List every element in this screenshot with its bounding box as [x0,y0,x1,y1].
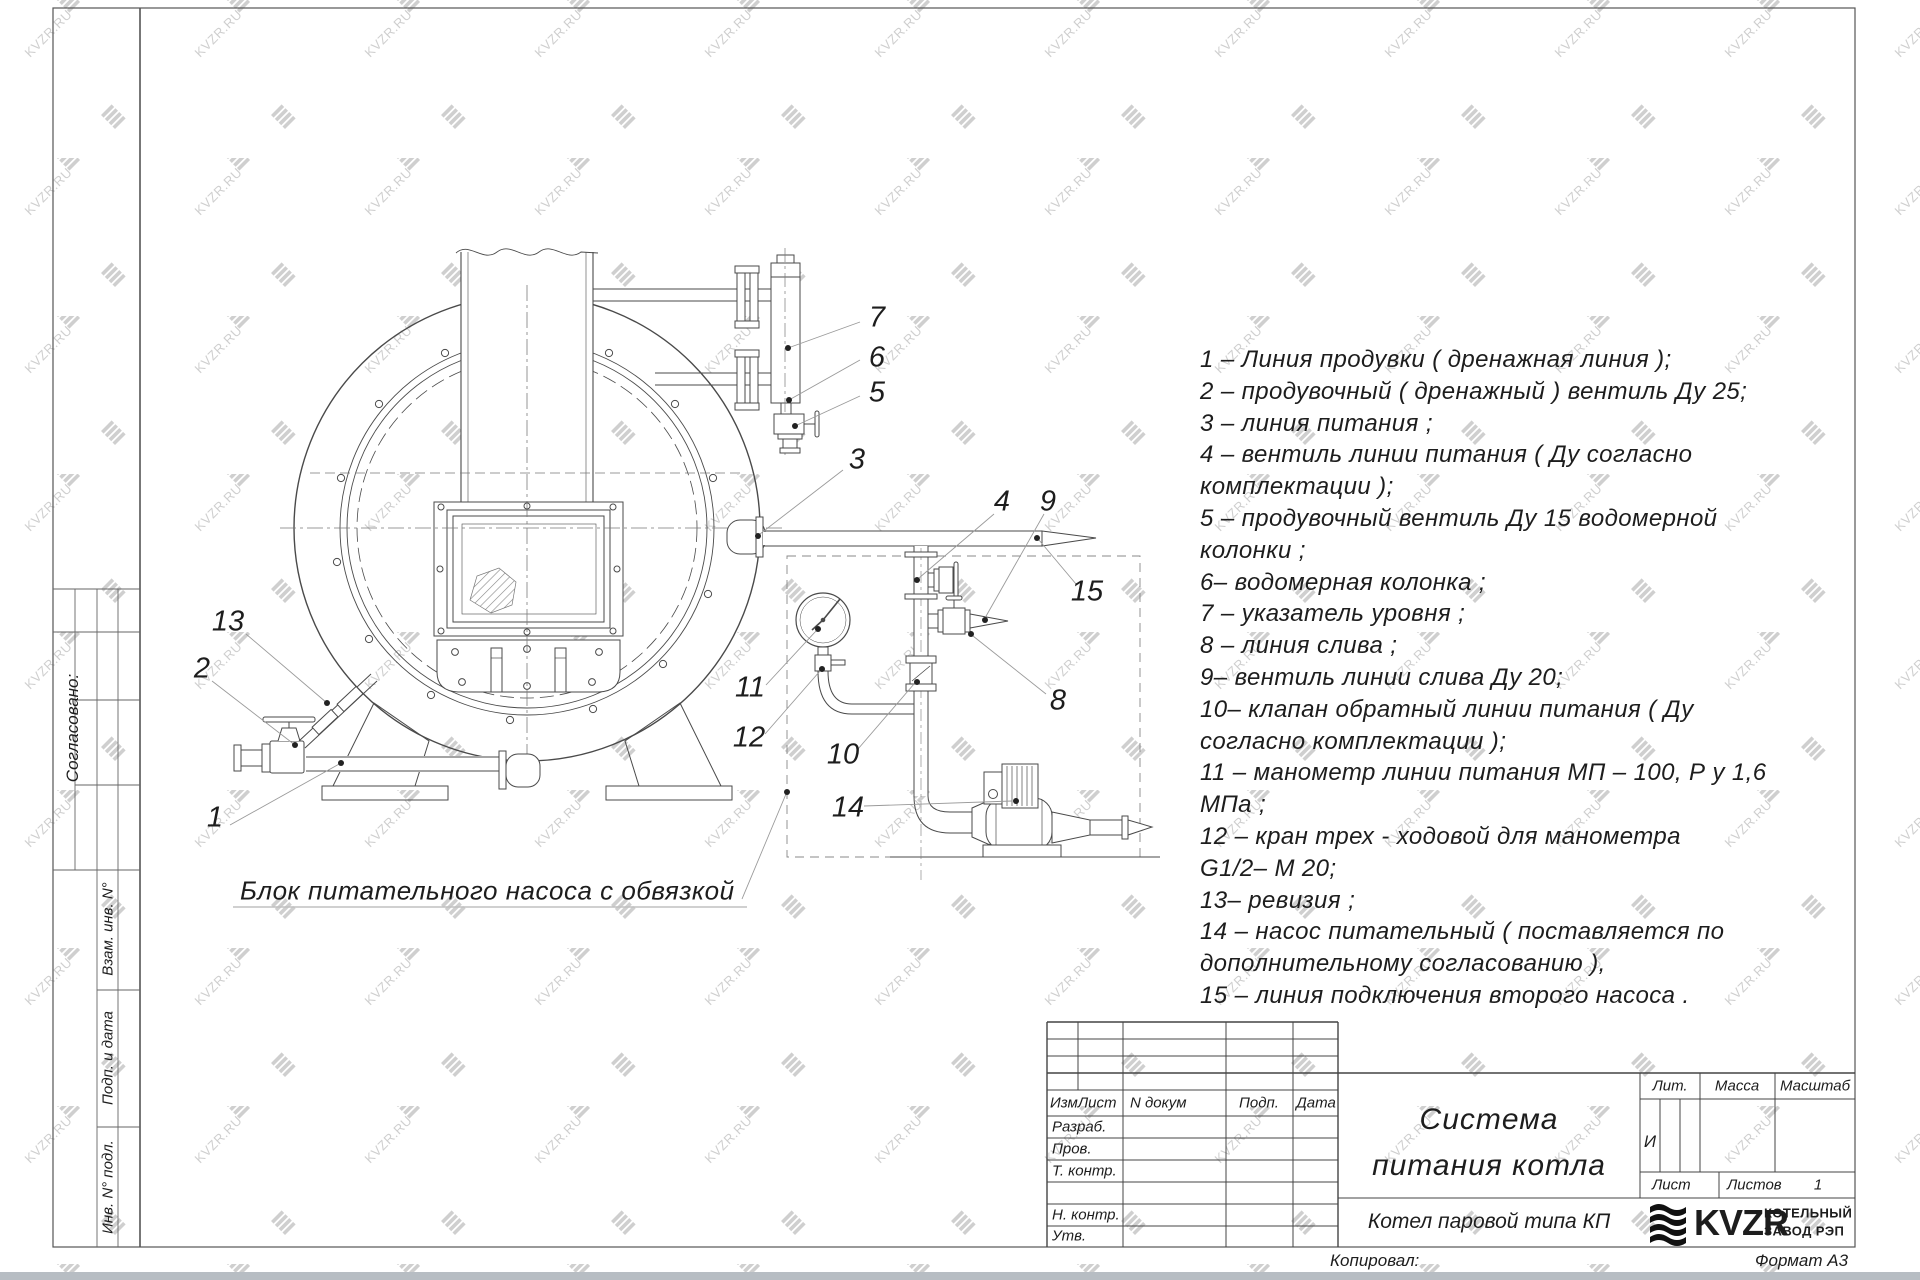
revision-spool [299,674,377,748]
rev-doc-header: N докум [1130,1095,1187,1112]
scale-label: Масштаб [1780,1078,1850,1095]
format-label: Формат А3 [1755,1251,1848,1271]
callout-5: 5 [869,377,885,410]
callout-7: 7 [869,302,885,335]
page-bottom-edge [0,1272,1920,1280]
callout-1: 1 [207,802,223,835]
legend-line: 9– вентиль линии слива Ду 20; [1200,662,1563,694]
doc-name: Котел паровой типа КП [1368,1210,1610,1234]
row-razrab: Разраб. [1052,1119,1106,1136]
flange-pair-lower [735,350,759,410]
callout-4: 4 [994,486,1010,519]
row-prov: Пров. [1052,1141,1092,1158]
sidebar-vzam-label: Взам. инв. N° [100,882,117,975]
legend-line: G1/2– М 20; [1200,853,1336,885]
callout-10: 10 [827,739,859,772]
legend-line: согласно комплектации ); [1200,726,1506,758]
water-level-column [593,248,819,455]
callout-8: 8 [1050,685,1066,718]
legend-line: 4 – вентиль линии питания ( Ду согласно [1200,439,1692,471]
brand-line2: ЗАВОД РЭП [1764,1224,1844,1239]
blowdown-valve [234,717,315,773]
legend-line: 12 – кран трех - ходовой для манометра [1200,821,1681,853]
check-valve [906,656,936,691]
sidebar-podp-label: Подп. и дата [100,1011,117,1105]
feed-line-piping [727,517,1152,880]
legend-line: 14 – насос питательный ( поставляется по [1200,916,1724,948]
flange-pair-upper [735,266,759,328]
legend-line: 3 – линия питания ; [1200,408,1433,440]
callout-12: 12 [733,722,765,755]
pump-block-caption: Блок питательного насоса с обвязкой [240,876,735,907]
legend-line: 5 – продувочный вентиль Ду 15 водомерной [1200,503,1717,535]
legend-line: 2 – продувочный ( дренажный ) вентиль Ду… [1200,376,1747,408]
legend-line: дополнительному согласованию ), [1200,948,1606,980]
legend-line: 13– ревизия ; [1200,885,1355,917]
copied-label: Копировал: [1330,1251,1419,1271]
lit-label: Лит. [1652,1078,1687,1095]
callout-15: 15 [1071,576,1103,609]
sheets-label: Листов [1727,1177,1782,1194]
feed-pump [914,764,1152,857]
callout-2: 2 [194,653,210,686]
brand-logo-icon [1650,1204,1686,1246]
rev-sign-header: Подп. [1239,1095,1279,1112]
feed-valve [928,562,958,598]
callout-9: 9 [1040,486,1056,519]
legend-line: 8 – линия слива ; [1200,630,1397,662]
callout-11: 11 [735,672,765,705]
drain-valve [928,596,1008,634]
boiler-front-view [280,249,785,800]
legend-line: 15 – линия подключения второго насоса . [1200,980,1690,1012]
row-nkontr: Н. контр. [1052,1207,1120,1224]
legend-line: 1 – Линия продувки ( дренажная линия ); [1200,344,1672,376]
three-way-cock [815,655,914,714]
brand-line1: КОТЕЛЬНЫЙ [1764,1206,1852,1221]
row-utv: Утв. [1052,1228,1086,1245]
lit-value: И [1644,1132,1656,1152]
sidebar-agreed-label: Согласовано: [63,674,83,782]
callout-3: 3 [849,444,865,477]
callout-6: 6 [869,342,885,375]
callout-14: 14 [832,792,864,825]
legend-line: комплектации ); [1200,471,1394,503]
legend-line: колонки ; [1200,535,1306,567]
legend-line: 10– клапан обратный линии питания ( Ду [1200,694,1694,726]
legend-line: МПа ; [1200,789,1266,821]
drawing-linework [0,0,1920,1280]
drawing-title-line2: питания котла [1372,1149,1606,1183]
boiler-feed-system-drawing: { "watermark": { "text": "KVZR.RU" }, "d… [0,0,1920,1280]
door-lower-plate [437,640,620,692]
drawing-title-line1: Система [1420,1103,1559,1137]
callout-13: 13 [212,606,244,639]
mass-label: Масса [1715,1078,1759,1095]
rev-date-header: Дата [1296,1095,1336,1112]
legend-line: 6– водомерная колонка ; [1200,567,1486,599]
rev-izm-header: ИзмЛист [1050,1095,1116,1112]
sheet-label: Лист [1652,1177,1691,1194]
pressure-gauge [796,593,850,655]
sheets-value: 1 [1814,1177,1822,1194]
row-tkontr: Т. контр. [1052,1163,1117,1180]
boiler-door [434,502,623,636]
sidebar-inv-label: Инв. N° подл. [100,1140,117,1234]
legend-line: 7 – указатель уровня ; [1200,598,1465,630]
legend-line: 11 – манометр линии питания МП – 100, Р … [1200,757,1767,789]
